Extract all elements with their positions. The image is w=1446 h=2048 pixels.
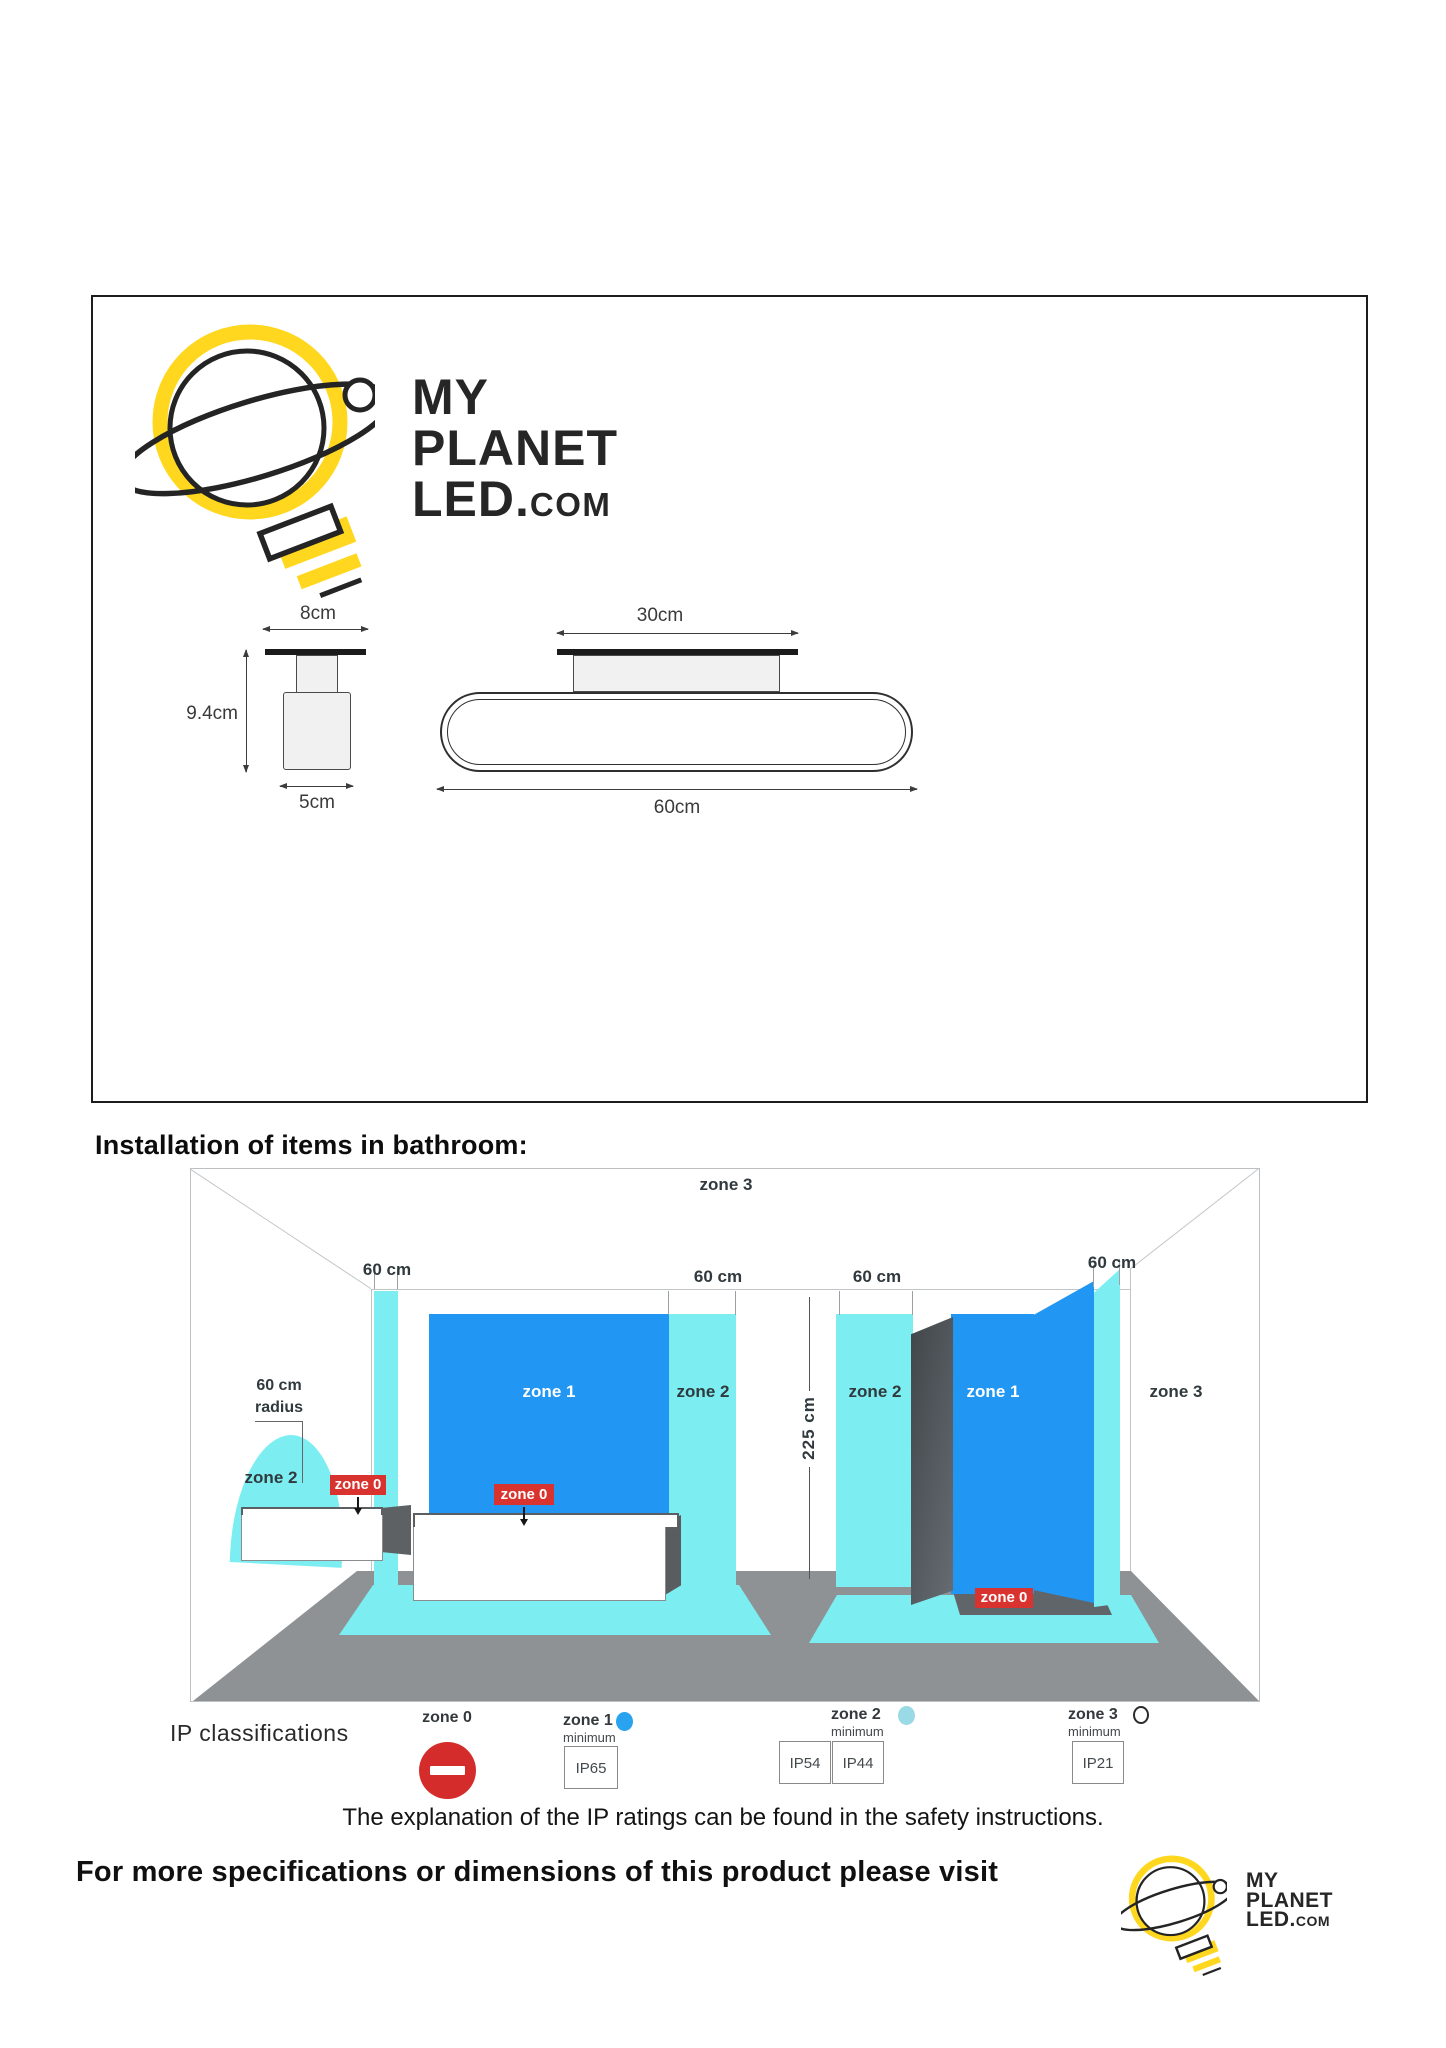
side-height-label: 9.4cm bbox=[160, 703, 238, 725]
brand-line-planet: PLANET bbox=[412, 423, 618, 474]
dim60-center-right-label: 60 cm bbox=[837, 1267, 917, 1287]
dim60-right-label: 60 cm bbox=[1072, 1253, 1152, 1273]
zone2-wall-shower bbox=[836, 1314, 913, 1587]
legend-zone3-name: zone 3 bbox=[1068, 1706, 1118, 1724]
ceiling-edge-left bbox=[190, 1169, 371, 1289]
legend-zone0-name: zone 0 bbox=[405, 1709, 489, 1727]
spec-sheet-page: MY PLANET LED.COM 8cm 9.4cm 5cm 30cm 60c… bbox=[0, 0, 1446, 2048]
ip-ratings-note: The explanation of the IP ratings can be… bbox=[0, 1804, 1446, 1832]
footer-cta-text: For more specifications or dimensions of… bbox=[76, 1856, 998, 1889]
brand-com-text: COM bbox=[530, 486, 612, 523]
dim60-left-label: 60 cm bbox=[347, 1260, 427, 1280]
no-entry-bar bbox=[430, 1766, 465, 1775]
side-base-arrow bbox=[280, 786, 353, 787]
planet-led-logo-icon bbox=[135, 287, 375, 607]
planet-led-logo-small-icon bbox=[1121, 1839, 1227, 1980]
zone3-right-label: zone 3 bbox=[1136, 1382, 1216, 1402]
zone0-badge-bathtub: zone 0 bbox=[494, 1484, 554, 1505]
legend-title: IP classifications bbox=[170, 1720, 349, 1747]
zone0-pointer-washbasin bbox=[357, 1497, 359, 1509]
zone2-shower-label: zone 2 bbox=[835, 1382, 915, 1402]
legend-zone2-minimum: minimum bbox=[831, 1724, 884, 1739]
zone2-bathtub-label: zone 2 bbox=[663, 1382, 743, 1402]
zone2-dot-icon bbox=[898, 1706, 915, 1725]
zone2-left-label: zone 2 bbox=[231, 1468, 311, 1488]
front-plate-arrow bbox=[557, 633, 798, 634]
zone1-dot-icon bbox=[616, 1712, 633, 1731]
shower-door-panel bbox=[911, 1317, 953, 1605]
zone0-pointer-bathtub bbox=[523, 1507, 525, 1520]
legend-zone3-rating: IP21 bbox=[1072, 1741, 1124, 1784]
bathroom-heading: Installation of items in bathroom: bbox=[95, 1130, 528, 1161]
zone2-right-wall-strip bbox=[1094, 1269, 1120, 1607]
side-base-label: 5cm bbox=[279, 792, 355, 814]
no-entry-icon bbox=[419, 1742, 476, 1799]
legend-zone2-name: zone 2 bbox=[831, 1706, 881, 1724]
wall-corner-right bbox=[1130, 1269, 1131, 1614]
side-fixture-stem bbox=[296, 655, 338, 693]
height-dim-line-bottom bbox=[809, 1467, 810, 1579]
bathtub-front bbox=[413, 1527, 666, 1601]
front-width-arrow bbox=[437, 789, 917, 790]
zone3-ceiling-label: zone 3 bbox=[651, 1175, 801, 1195]
legend-zone1-minimum: minimum bbox=[563, 1730, 616, 1745]
side-width-arrow bbox=[263, 629, 368, 630]
height-dim-line-top bbox=[809, 1297, 810, 1391]
washbasin-front bbox=[241, 1515, 383, 1561]
brand-wordmark: MY PLANET LED.COM bbox=[412, 372, 618, 530]
legend-zone1-name: zone 1 bbox=[563, 1712, 613, 1730]
front-plate-label: 30cm bbox=[620, 605, 700, 627]
tick bbox=[735, 1291, 736, 1315]
front-fixture-ring-inner bbox=[447, 699, 906, 765]
legend-zone3-minimum: minimum bbox=[1068, 1724, 1121, 1739]
zone1-shower-label: zone 1 bbox=[953, 1382, 1033, 1402]
front-fixture-ring-outer bbox=[440, 692, 913, 772]
zone0-badge-washbasin: zone 0 bbox=[330, 1475, 386, 1495]
legend-zone2-rating-a: IP54 bbox=[779, 1741, 831, 1784]
radius-bracket-h bbox=[255, 1421, 303, 1422]
zone3-dot-icon bbox=[1133, 1706, 1149, 1724]
tick bbox=[839, 1291, 840, 1315]
radius-word-label: radius bbox=[239, 1399, 319, 1417]
side-height-arrow bbox=[246, 650, 247, 772]
height-dim-label: 225 cm bbox=[799, 1388, 819, 1468]
zone1-bathtub-label: zone 1 bbox=[489, 1382, 609, 1402]
zone1-wall-shower bbox=[951, 1314, 1034, 1594]
brand-line-my: MY bbox=[412, 372, 618, 423]
footer-brand-wordmark: MY PLANET LED.COM bbox=[1246, 1871, 1333, 1932]
footer-led-text: LED. bbox=[1246, 1908, 1296, 1931]
zone2-left-wall-strip bbox=[374, 1291, 398, 1609]
zone1-right-wall bbox=[1034, 1281, 1094, 1603]
radius-value-label: 60 cm bbox=[239, 1377, 319, 1395]
legend-zone2-rating-b: IP44 bbox=[832, 1741, 884, 1784]
footer-brand-led: LED.COM bbox=[1246, 1910, 1333, 1932]
bathroom-zones-diagram: 225 cm 60 cm radius zone 3 60 cm 60 cm 6… bbox=[190, 1168, 1260, 1702]
front-width-label: 60cm bbox=[637, 797, 717, 819]
back-wall-top-edge bbox=[371, 1289, 1131, 1290]
washbasin-side bbox=[381, 1505, 411, 1555]
legend-zone1-rating: IP65 bbox=[564, 1746, 618, 1789]
footer-com-text: COM bbox=[1296, 1913, 1330, 1929]
brand-led-text: LED. bbox=[412, 471, 530, 527]
brand-line-led: LED.COM bbox=[412, 474, 618, 530]
footer-brand-my: MY bbox=[1246, 1871, 1333, 1891]
front-mount-plate bbox=[573, 655, 780, 692]
tick bbox=[912, 1291, 913, 1315]
side-fixture-body bbox=[283, 692, 351, 770]
dim60-center-left-label: 60 cm bbox=[678, 1267, 758, 1287]
side-width-label: 8cm bbox=[280, 603, 356, 625]
tick bbox=[668, 1291, 669, 1315]
zone0-badge-shower: zone 0 bbox=[975, 1588, 1033, 1608]
